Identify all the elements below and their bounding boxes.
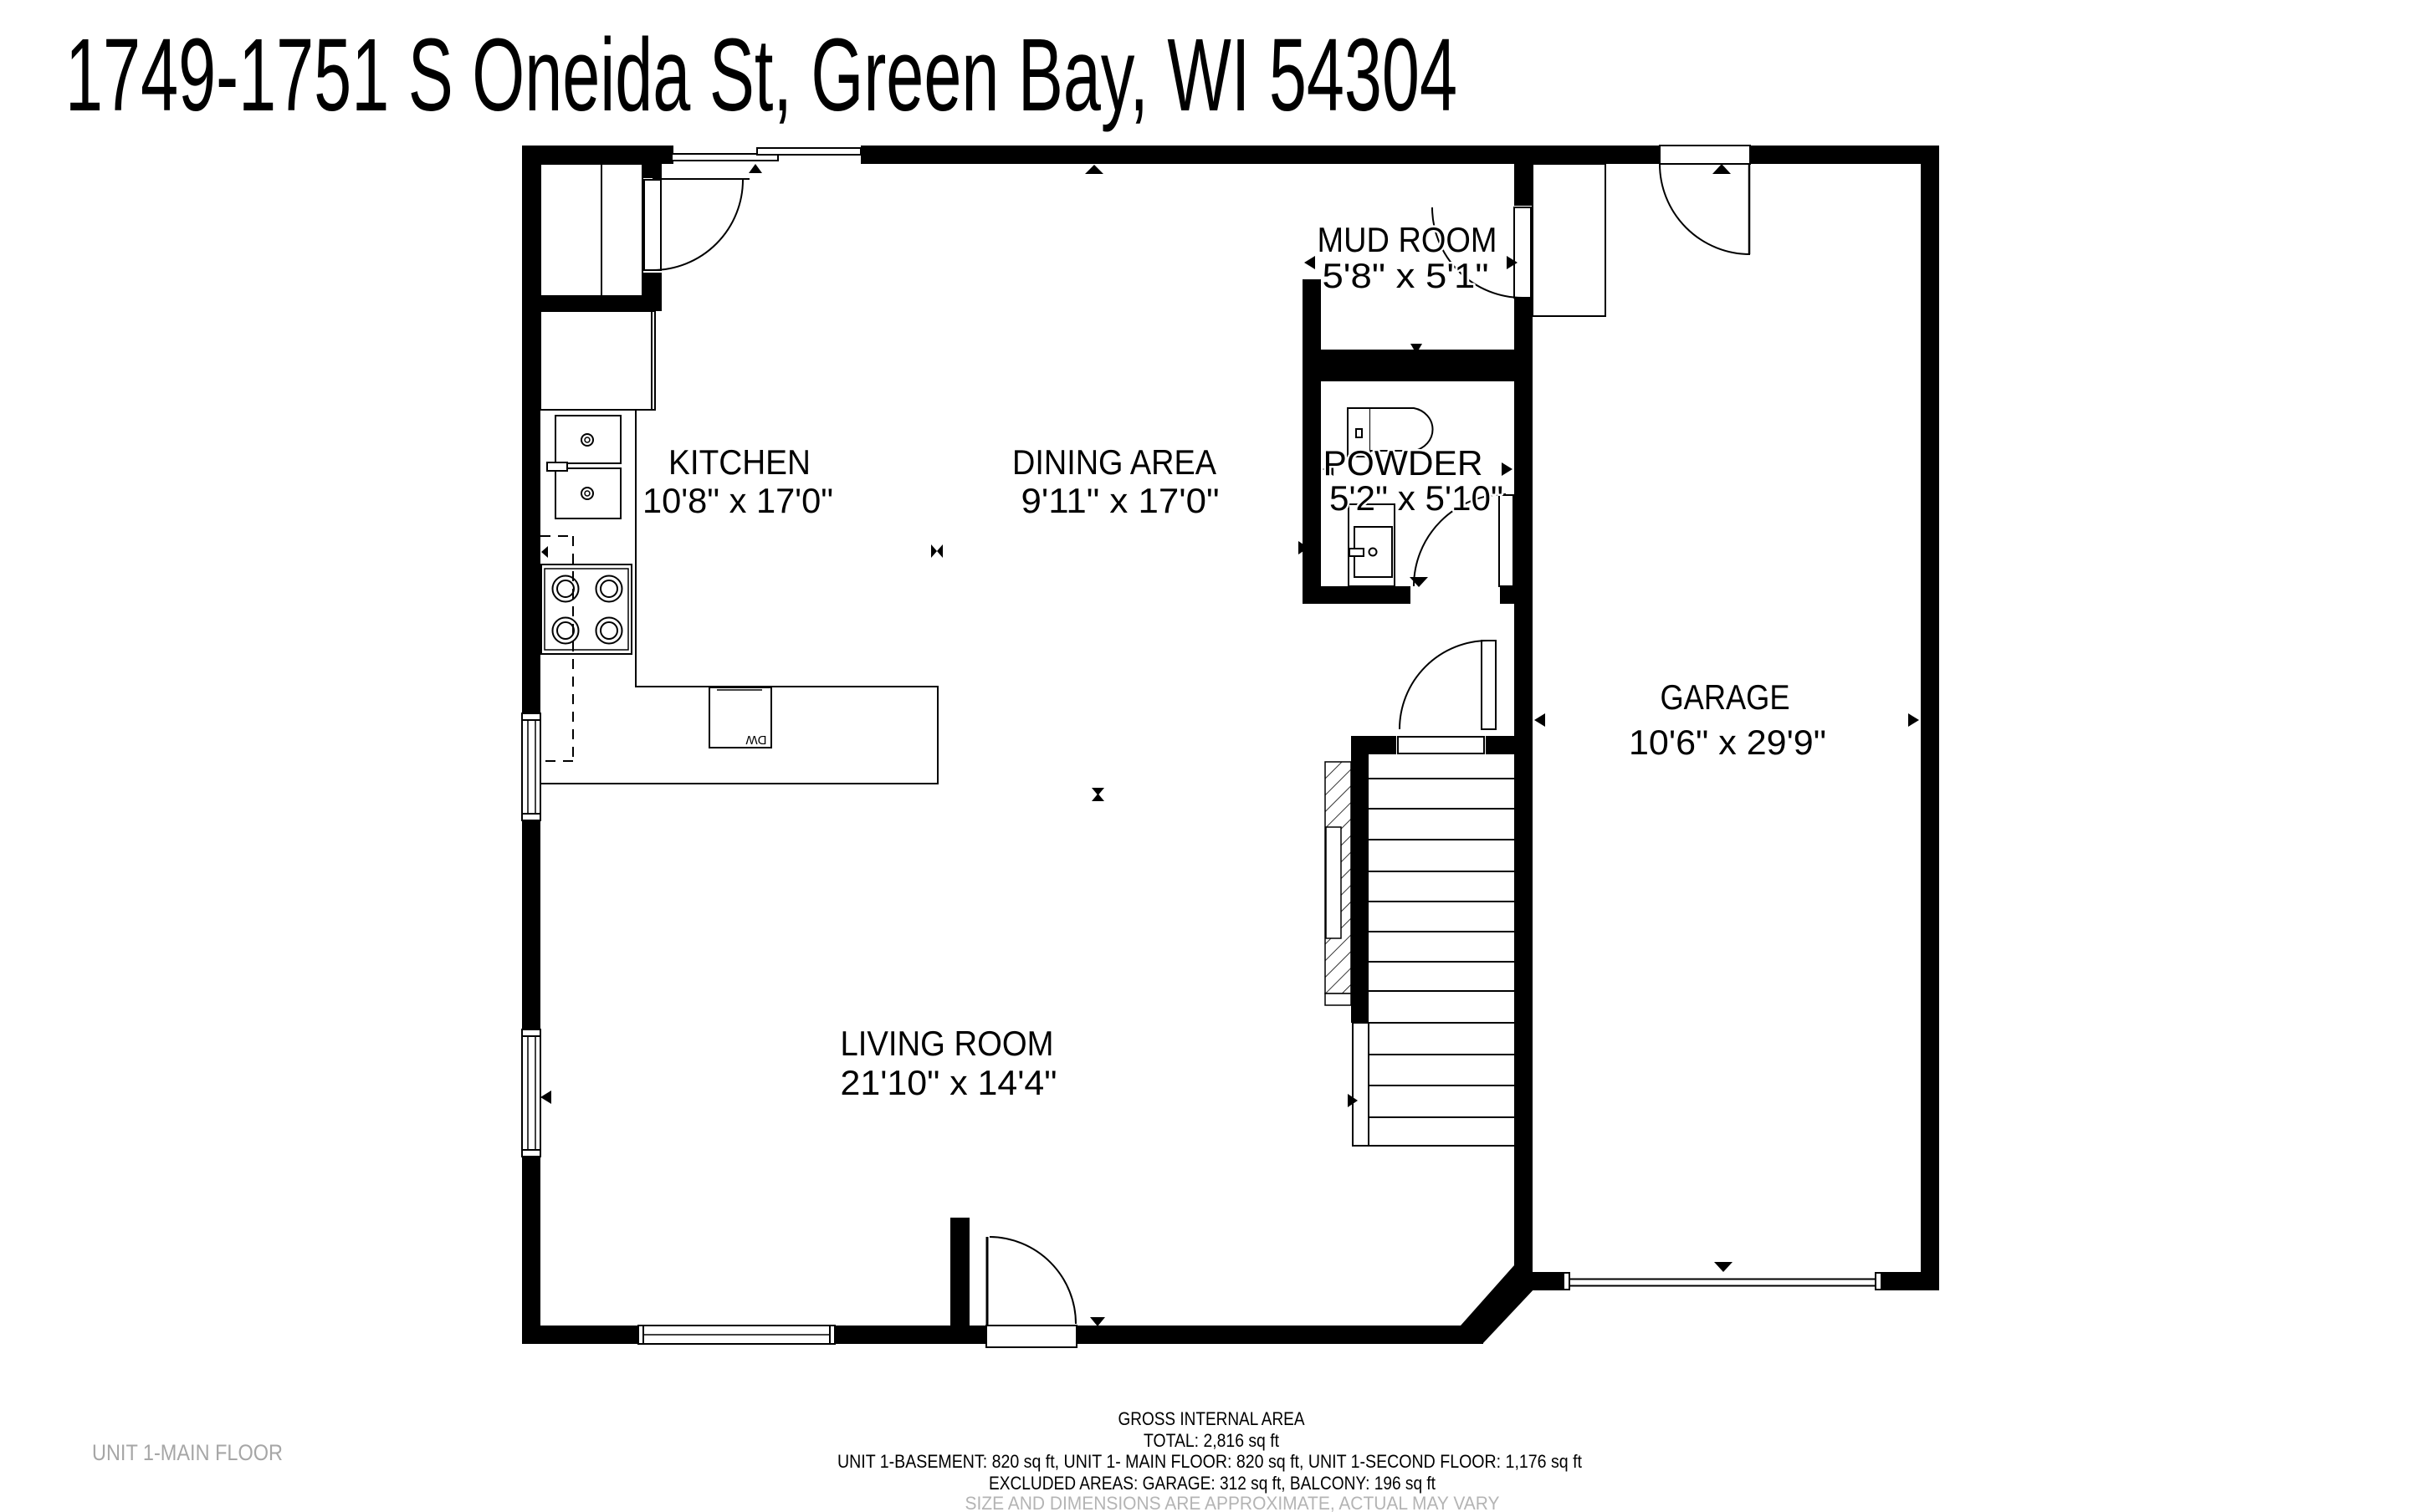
- svg-text:DW: DW: [745, 733, 767, 747]
- svg-text:GARAGE: GARAGE: [1661, 677, 1790, 717]
- svg-text:UNIT 1-MAIN FLOOR: UNIT 1-MAIN FLOOR: [92, 1440, 283, 1465]
- svg-text:SIZE AND DIMENSIONS ARE APPROX: SIZE AND DIMENSIONS ARE APPROXIMATE, ACT…: [965, 1493, 1500, 1512]
- svg-text:LIVING ROOM: LIVING ROOM: [841, 1024, 1054, 1063]
- svg-text:UNIT 1-BASEMENT: 820 sq ft, UN: UNIT 1-BASEMENT: 820 sq ft, UNIT 1- MAIN…: [837, 1451, 1582, 1472]
- svg-text:DINING AREA: DINING AREA: [1012, 442, 1216, 482]
- svg-text:POWDER: POWDER: [1323, 443, 1483, 483]
- svg-text:GROSS INTERNAL AREA: GROSS INTERNAL AREA: [1118, 1408, 1305, 1429]
- svg-text:10'6" x 29'9": 10'6" x 29'9": [1629, 723, 1826, 762]
- svg-text:5'2" x 5'10": 5'2" x 5'10": [1329, 478, 1503, 518]
- svg-text:TOTAL: 2,816 sq ft: TOTAL: 2,816 sq ft: [1144, 1430, 1279, 1451]
- svg-text:5'8" x 5'1": 5'8" x 5'1": [1323, 256, 1489, 295]
- svg-text:EXCLUDED AREAS: GARAGE: 312 sq: EXCLUDED AREAS: GARAGE: 312 sq ft, BALCO…: [989, 1473, 1436, 1494]
- svg-text:9'11" x 17'0": 9'11" x 17'0": [1021, 481, 1220, 520]
- svg-text:KITCHEN: KITCHEN: [668, 442, 811, 482]
- svg-text:MUD ROOM: MUD ROOM: [1318, 220, 1497, 259]
- svg-text:10'8" x 17'0": 10'8" x 17'0": [642, 481, 833, 520]
- svg-text:21'10" x 14'4": 21'10" x 14'4": [841, 1063, 1057, 1102]
- svg-text:1749-1751 S Oneida St, Green B: 1749-1751 S Oneida St, Green Bay, WI 543…: [65, 18, 1457, 133]
